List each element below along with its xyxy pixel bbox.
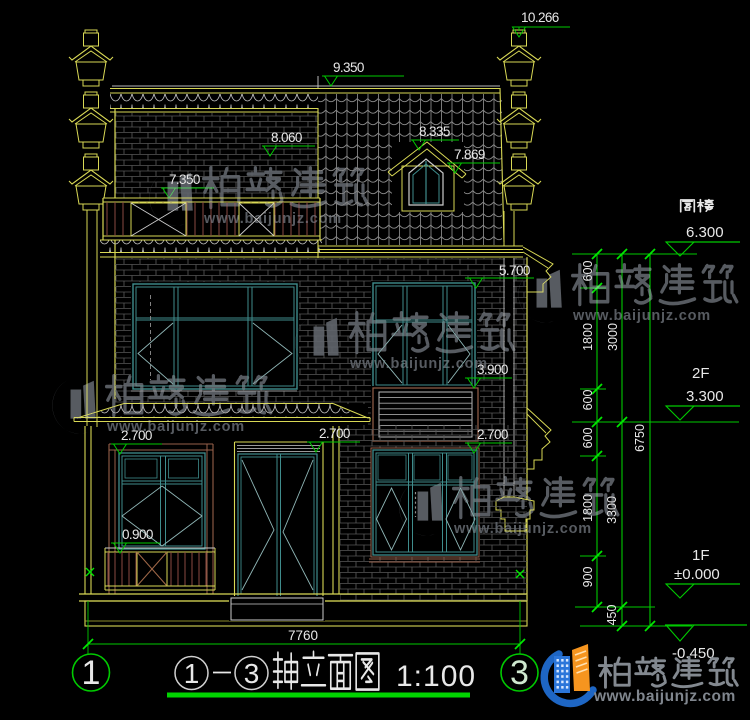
svg-text:1F: 1F (692, 547, 710, 564)
svg-text:6.300: 6.300 (686, 224, 724, 241)
svg-text:7.869: 7.869 (454, 147, 485, 162)
svg-text:7760: 7760 (288, 628, 318, 643)
svg-text:3: 3 (244, 658, 260, 689)
svg-text:8.060: 8.060 (271, 130, 302, 145)
svg-text:6750: 6750 (633, 424, 647, 452)
svg-text:2F: 2F (692, 365, 710, 382)
svg-text:2.700: 2.700 (319, 426, 350, 441)
svg-text:5.700: 5.700 (499, 263, 530, 278)
svg-text:10.266: 10.266 (521, 10, 559, 25)
svg-text:1: 1 (82, 654, 101, 692)
svg-text:0.900: 0.900 (122, 527, 153, 542)
svg-text:±0.000: ±0.000 (674, 566, 720, 583)
svg-text:8.335: 8.335 (419, 124, 450, 139)
svg-text:1: 1 (184, 658, 200, 689)
svg-text:9.350: 9.350 (333, 60, 364, 75)
svg-text:3.300: 3.300 (686, 388, 724, 405)
svg-text:900: 900 (581, 567, 595, 588)
svg-text:450: 450 (605, 605, 619, 626)
svg-text:3: 3 (510, 654, 529, 692)
svg-text:600: 600 (581, 428, 595, 449)
svg-text:www.baijunjz.com: www.baijunjz.com (593, 688, 736, 705)
svg-text:600: 600 (581, 390, 595, 411)
svg-text:3000: 3000 (606, 323, 620, 351)
svg-text:1:100: 1:100 (396, 660, 476, 693)
svg-text:2.700: 2.700 (477, 427, 508, 442)
svg-text:1800: 1800 (581, 323, 595, 351)
